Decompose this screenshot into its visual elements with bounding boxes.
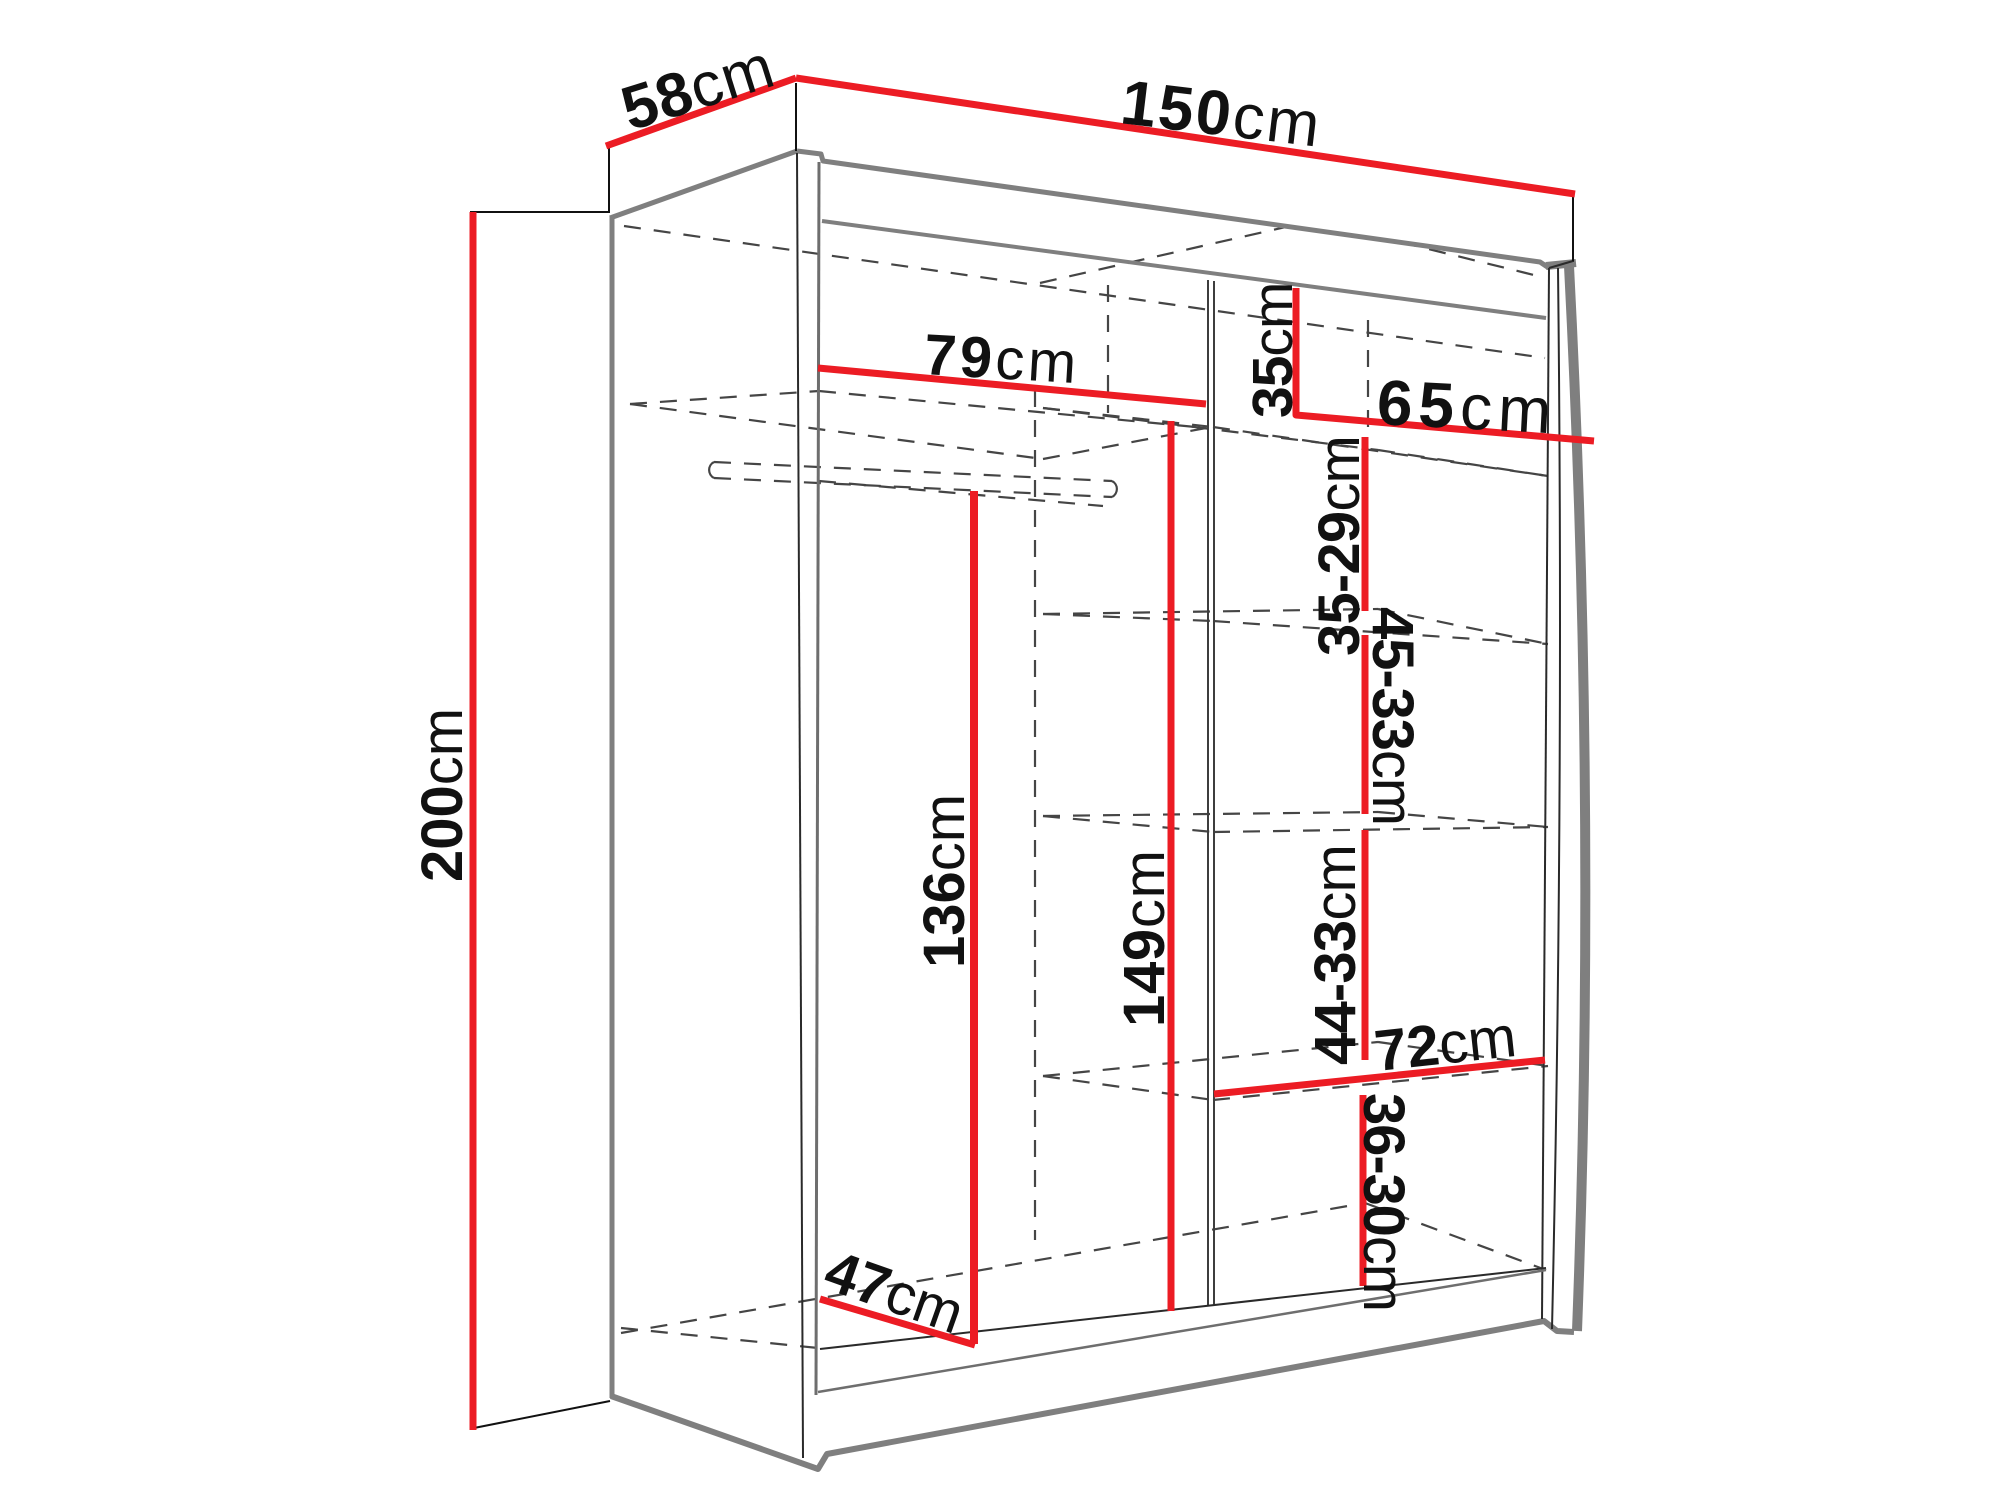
svg-text:35cm: 35cm [1241,283,1305,418]
svg-text:79cm: 79cm [922,322,1081,396]
svg-text:200cm: 200cm [410,708,475,882]
svg-text:58cm: 58cm [613,32,782,145]
svg-text:45-33cm: 45-33cm [1360,607,1425,825]
svg-text:65cm: 65cm [1375,366,1559,447]
svg-text:149cm: 149cm [1112,849,1177,1027]
svg-text:44-33cm: 44-33cm [1303,845,1368,1065]
svg-text:150cm: 150cm [1117,67,1325,160]
svg-text:136cm: 136cm [912,794,977,968]
svg-text:36-30cm: 36-30cm [1351,1093,1416,1311]
svg-text:47cm: 47cm [817,1238,972,1347]
